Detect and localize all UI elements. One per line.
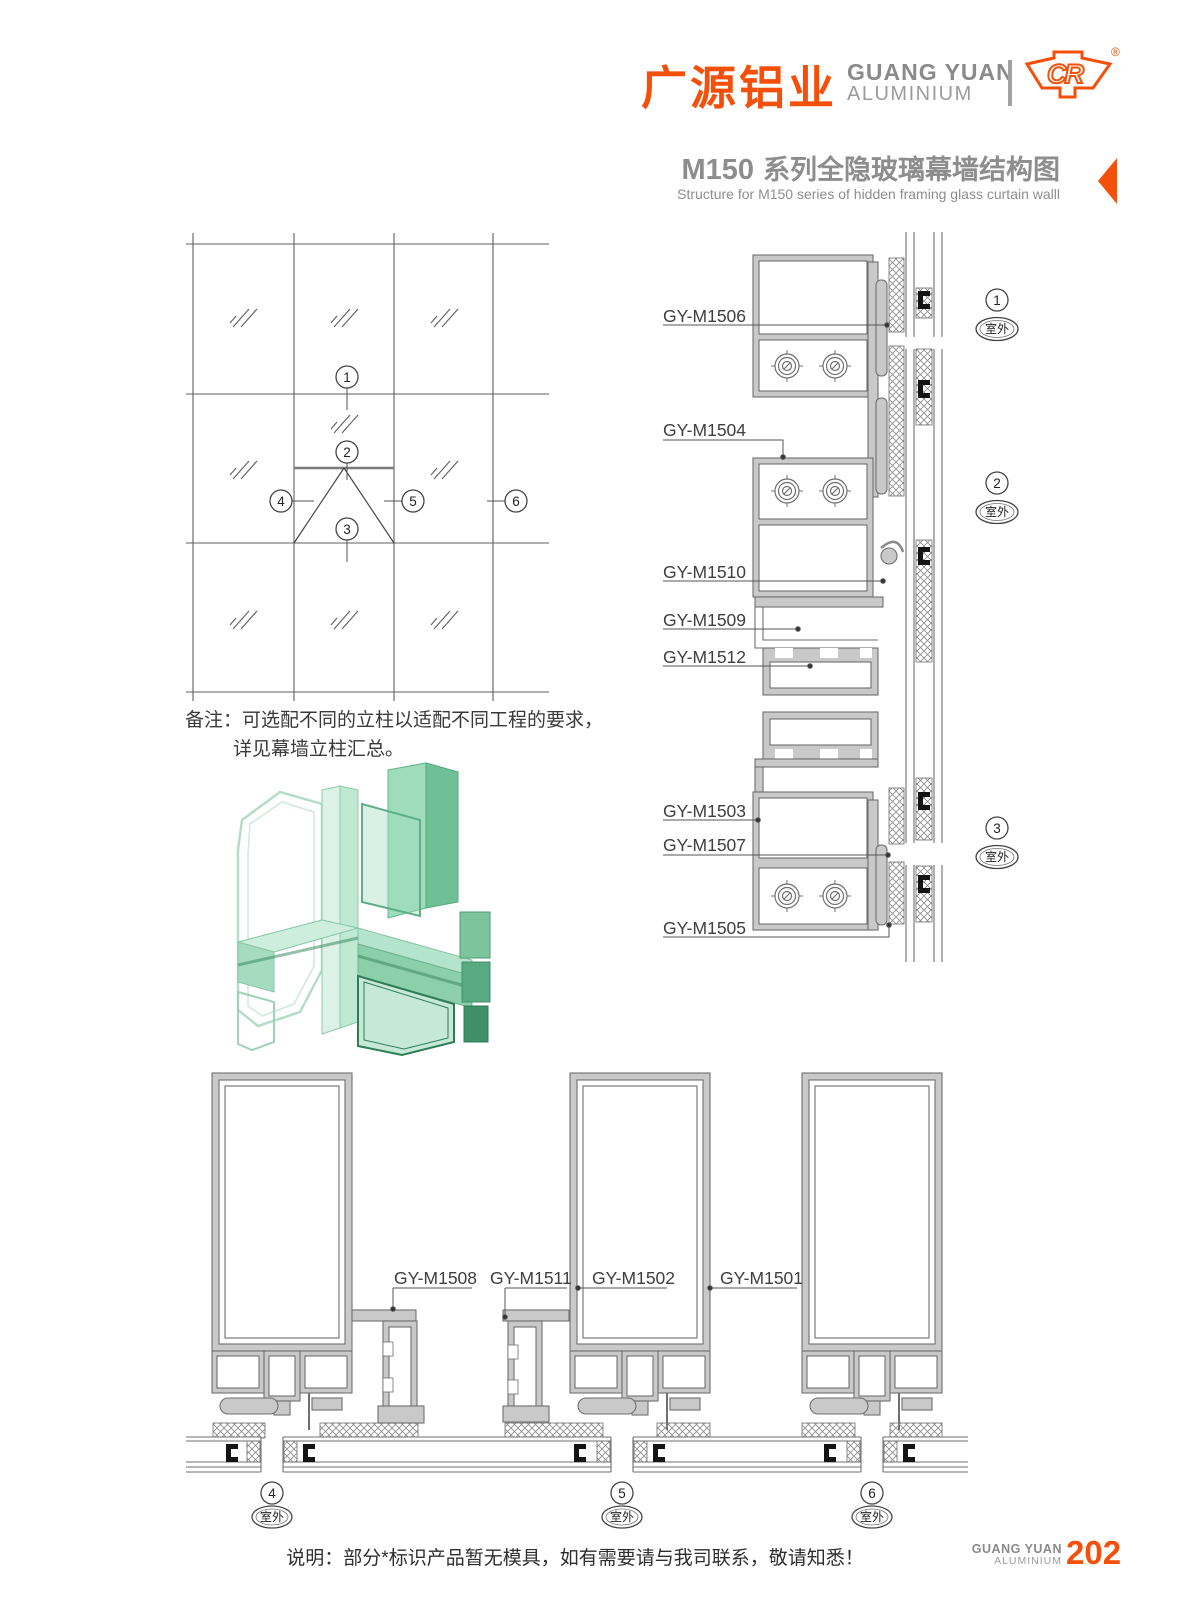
marker-2: 2 bbox=[993, 476, 1001, 491]
profile-label: GY-M1507 bbox=[663, 835, 746, 855]
profile-label: GY-M1503 bbox=[663, 801, 746, 821]
title-arrow-icon bbox=[1098, 158, 1117, 204]
brand-divider bbox=[1008, 60, 1012, 106]
profile-label: GY-M1509 bbox=[663, 610, 746, 630]
footer-brand: GUANG YUAN ALUMINIUM bbox=[942, 1543, 1062, 1566]
profile-label: GY-M1511 bbox=[490, 1268, 572, 1288]
profile-label: GY-M1510 bbox=[663, 562, 746, 582]
section-markers-right: 1 室外 2 室外 3 室外 bbox=[976, 289, 1018, 869]
page: { "brand": { "cn": "广源铝业", "en_line1": "… bbox=[0, 0, 1200, 1617]
series-model: M150 bbox=[681, 154, 754, 186]
profile-label: GY-M1505 bbox=[663, 918, 746, 938]
outdoor-badge: 室外 bbox=[610, 1509, 634, 1524]
page-subtitle: Structure for M150 series of hidden fram… bbox=[677, 186, 1060, 202]
marker-4: 4 bbox=[268, 1486, 276, 1501]
outdoor-badge: 室外 bbox=[985, 504, 1009, 519]
section-markers-bottom: 4 室外 5 室外 6 室外 bbox=[252, 1482, 892, 1528]
profile-3d-render bbox=[222, 760, 502, 1055]
footer-brand-line1: GUANG YUAN bbox=[942, 1543, 1062, 1556]
brand-name-english: GUANG YUAN ALUMINIUM bbox=[847, 60, 1014, 105]
profile-label: GY-M1508 bbox=[394, 1268, 477, 1288]
logo-letters: CR bbox=[1047, 59, 1084, 89]
elevation-markers: 1 2 3 4 5 6 bbox=[270, 366, 527, 540]
marker-6: 6 bbox=[868, 1486, 876, 1501]
brand-en-line2: ALUMINIUM bbox=[847, 84, 1014, 105]
footer-brand-line2: ALUMINIUM bbox=[942, 1556, 1062, 1567]
remark-line2: 详见幕墙立柱汇总。 bbox=[233, 734, 404, 761]
elevation-drawing: 1 2 3 4 5 6 bbox=[180, 228, 552, 706]
outdoor-badge: 室外 bbox=[260, 1509, 284, 1524]
marker-3: 3 bbox=[993, 821, 1001, 836]
detail-sections-right: GY-M1506 GY-M1504 GY-M1510 GY-M1509 GY-M… bbox=[620, 228, 1020, 968]
marker-6: 6 bbox=[512, 494, 520, 509]
page-title: M150系列全隐玻璃幕墙结构图 bbox=[681, 148, 1060, 187]
brand-en-line1: GUANG YUAN bbox=[847, 60, 1014, 84]
profile-label: GY-M1504 bbox=[663, 420, 746, 440]
remark-line1: 备注：可选配不同的立柱以适配不同工程的要求， bbox=[185, 705, 603, 732]
profile-label: GY-M1502 bbox=[592, 1268, 675, 1288]
detail-sections-bottom: GY-M1508 GY-M1511 GY-M1502 GY-M1501 4 室外… bbox=[185, 1040, 975, 1535]
profile-label: GY-M1501 bbox=[720, 1268, 803, 1288]
marker-5: 5 bbox=[618, 1486, 626, 1501]
marker-5: 5 bbox=[409, 494, 417, 509]
profile-label: GY-M1506 bbox=[663, 306, 746, 326]
marker-1: 1 bbox=[993, 293, 1001, 308]
company-logo-cr-icon: CR ® bbox=[1020, 44, 1120, 124]
outdoor-badge: 室外 bbox=[985, 849, 1009, 864]
profile-label: GY-M1512 bbox=[663, 647, 746, 667]
brand-name-chinese: 广源铝业 bbox=[641, 52, 837, 118]
page-number: 202 bbox=[1066, 1534, 1121, 1572]
marker-1: 1 bbox=[343, 370, 351, 385]
outdoor-badge: 室外 bbox=[985, 321, 1009, 336]
title-chinese: 系列全隐玻璃幕墙结构图 bbox=[763, 155, 1060, 185]
marker-3: 3 bbox=[343, 522, 351, 537]
registered-mark: ® bbox=[1111, 45, 1120, 59]
marker-2: 2 bbox=[343, 445, 351, 460]
outdoor-badge: 室外 bbox=[860, 1509, 884, 1524]
marker-4: 4 bbox=[277, 494, 285, 509]
